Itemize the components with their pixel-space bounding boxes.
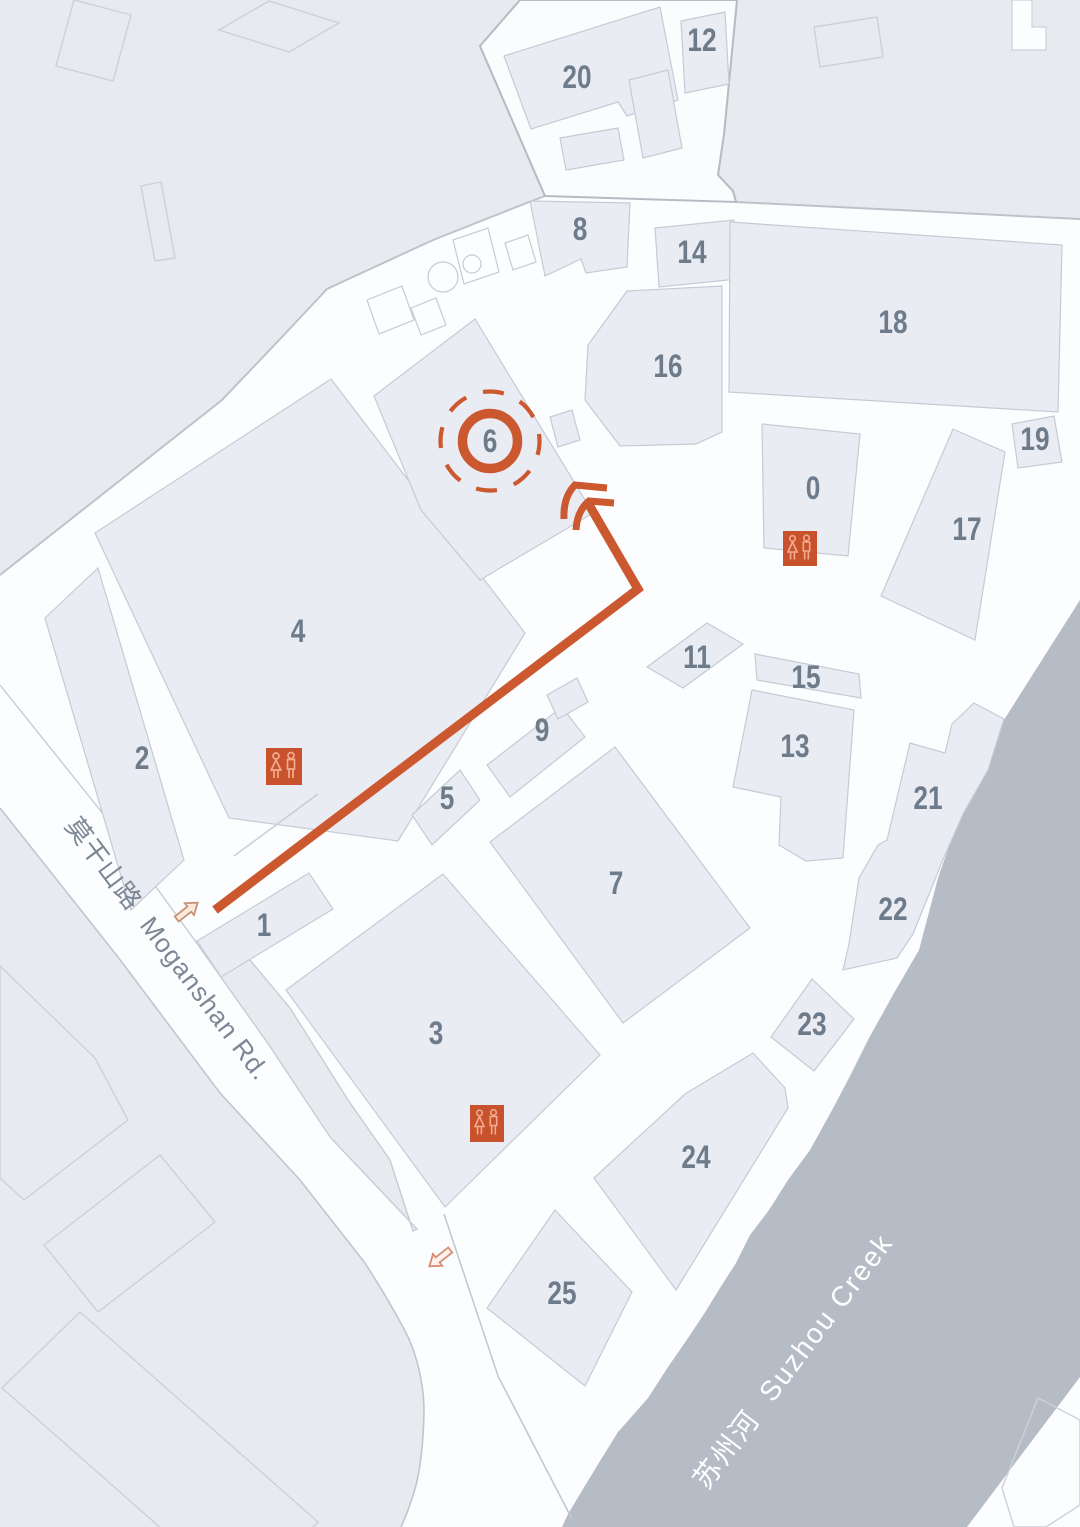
svg-text:22: 22 [878, 893, 907, 928]
svg-text:20: 20 [562, 61, 591, 96]
svg-text:16: 16 [653, 350, 682, 385]
svg-text:9: 9 [535, 714, 550, 749]
svg-text:5: 5 [440, 782, 455, 817]
svg-text:21: 21 [913, 782, 942, 817]
svg-text:24: 24 [681, 1141, 711, 1176]
svg-text:19: 19 [1020, 423, 1049, 458]
svg-text:23: 23 [797, 1008, 826, 1043]
svg-text:25: 25 [547, 1277, 576, 1312]
svg-text:3: 3 [429, 1017, 444, 1052]
svg-text:4: 4 [291, 615, 306, 650]
svg-text:17: 17 [952, 513, 981, 548]
svg-text:11: 11 [683, 641, 711, 676]
svg-text:0: 0 [806, 472, 821, 507]
svg-text:14: 14 [677, 236, 707, 271]
svg-text:18: 18 [878, 306, 907, 341]
svg-text:6: 6 [483, 425, 498, 460]
svg-text:8: 8 [573, 213, 588, 248]
svg-text:2: 2 [135, 742, 150, 777]
svg-text:7: 7 [609, 867, 624, 902]
svg-text:12: 12 [687, 24, 716, 59]
svg-text:13: 13 [780, 730, 809, 765]
svg-text:1: 1 [257, 909, 272, 944]
svg-text:15: 15 [791, 661, 820, 696]
